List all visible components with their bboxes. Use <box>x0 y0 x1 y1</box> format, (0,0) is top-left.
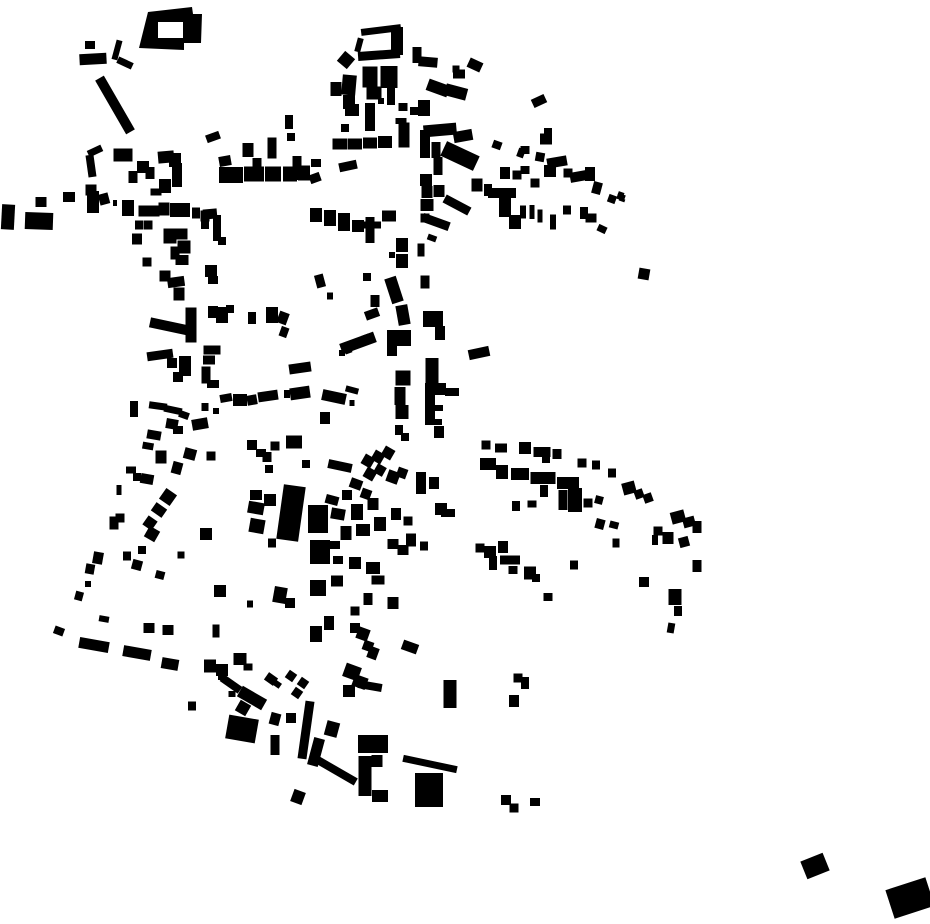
building <box>402 755 457 773</box>
building <box>592 461 600 470</box>
building <box>146 167 155 179</box>
building <box>117 485 122 495</box>
building <box>218 155 232 167</box>
building <box>288 362 311 375</box>
building <box>509 566 518 574</box>
building <box>139 7 202 50</box>
building <box>213 408 219 414</box>
building <box>521 677 529 689</box>
building <box>363 273 371 281</box>
building <box>519 442 531 454</box>
building <box>132 234 142 245</box>
building <box>544 165 556 177</box>
building <box>563 206 571 215</box>
building <box>178 552 185 559</box>
building <box>343 685 355 697</box>
building <box>613 539 620 548</box>
building <box>276 311 290 326</box>
building <box>368 498 379 510</box>
building <box>357 680 382 692</box>
building <box>324 616 334 630</box>
building <box>350 400 355 406</box>
building <box>163 625 174 635</box>
building <box>208 276 218 284</box>
building <box>207 452 216 461</box>
building <box>434 185 445 197</box>
building <box>310 626 322 642</box>
building <box>366 217 375 243</box>
building <box>468 346 491 360</box>
building <box>293 156 302 180</box>
building <box>291 687 304 700</box>
building <box>131 559 143 571</box>
building <box>214 585 226 597</box>
building <box>669 589 682 605</box>
building <box>491 140 502 151</box>
building <box>480 458 496 470</box>
building <box>444 680 457 708</box>
building <box>396 238 408 252</box>
building <box>381 66 398 88</box>
building <box>233 394 247 406</box>
building <box>243 143 254 157</box>
building <box>205 265 217 277</box>
building <box>404 517 413 526</box>
building <box>247 601 253 608</box>
building <box>186 308 197 343</box>
building <box>285 115 293 129</box>
building <box>95 76 135 135</box>
building <box>248 312 256 324</box>
building <box>652 535 658 545</box>
building <box>122 200 134 216</box>
building <box>286 713 296 723</box>
building <box>247 501 265 516</box>
building <box>418 244 425 257</box>
building <box>156 451 167 464</box>
building <box>161 657 180 671</box>
building <box>25 212 54 230</box>
building <box>434 426 444 438</box>
building <box>432 142 441 158</box>
building <box>349 557 361 569</box>
building <box>510 804 519 813</box>
building <box>500 556 520 565</box>
building <box>654 527 663 536</box>
building <box>285 598 295 608</box>
building <box>143 258 152 267</box>
building <box>279 326 290 338</box>
building <box>177 229 188 240</box>
building <box>391 508 401 520</box>
building <box>213 625 220 638</box>
building-footprint-map <box>0 0 930 924</box>
building <box>638 268 651 281</box>
building <box>512 501 520 511</box>
building <box>513 171 522 180</box>
building <box>365 103 375 131</box>
building <box>445 388 459 396</box>
building <box>53 626 65 637</box>
building <box>310 208 322 222</box>
building <box>482 441 491 450</box>
building <box>401 433 409 441</box>
building <box>287 133 295 141</box>
building <box>188 702 196 711</box>
building <box>342 490 352 500</box>
building <box>530 798 540 806</box>
building <box>363 222 381 229</box>
building <box>416 472 426 494</box>
building <box>87 191 99 213</box>
building <box>421 276 430 289</box>
building <box>331 576 343 587</box>
building <box>489 556 497 570</box>
building <box>500 167 510 179</box>
building <box>218 237 226 245</box>
building <box>351 607 360 616</box>
building <box>420 130 430 158</box>
building <box>435 326 445 340</box>
building <box>86 155 97 178</box>
building <box>387 330 411 346</box>
building <box>200 528 212 540</box>
building <box>542 455 550 463</box>
building <box>608 469 616 478</box>
building <box>557 477 579 489</box>
building <box>440 141 479 171</box>
building <box>387 87 395 105</box>
building <box>496 465 508 479</box>
building <box>367 87 382 100</box>
building <box>330 541 340 549</box>
building <box>444 83 468 100</box>
building <box>396 405 409 419</box>
building <box>130 401 138 417</box>
building <box>122 645 151 661</box>
building <box>594 518 605 530</box>
building <box>207 380 219 388</box>
building <box>476 544 485 553</box>
building <box>297 677 310 690</box>
building <box>388 597 399 609</box>
building <box>126 467 136 474</box>
building <box>372 576 385 585</box>
building <box>167 358 177 368</box>
building <box>422 186 433 198</box>
building <box>420 174 432 186</box>
building <box>351 504 363 520</box>
building <box>333 556 343 564</box>
building <box>129 171 138 183</box>
building <box>276 484 305 542</box>
building <box>333 139 348 150</box>
building <box>358 735 388 753</box>
building <box>219 393 232 403</box>
building <box>364 593 373 605</box>
building <box>423 311 443 327</box>
building <box>425 383 435 425</box>
building <box>247 440 257 450</box>
building <box>885 877 930 919</box>
building <box>263 452 272 462</box>
building <box>78 637 109 653</box>
building <box>98 192 111 205</box>
building <box>114 149 133 162</box>
building <box>693 560 702 572</box>
building <box>349 477 364 491</box>
building <box>520 206 526 219</box>
building <box>268 539 276 548</box>
building <box>378 98 384 104</box>
building <box>74 591 84 602</box>
building <box>396 371 411 386</box>
building <box>387 346 397 356</box>
building <box>531 179 540 188</box>
building <box>138 546 146 554</box>
building <box>453 66 460 73</box>
building <box>327 293 333 300</box>
building <box>354 37 363 52</box>
building <box>155 570 166 580</box>
building <box>310 540 330 564</box>
building <box>312 755 358 786</box>
building <box>596 224 607 234</box>
building <box>528 501 537 508</box>
building <box>314 274 326 289</box>
building <box>570 561 578 570</box>
building <box>495 444 507 453</box>
building <box>364 307 380 320</box>
building <box>226 305 234 313</box>
building <box>663 532 674 544</box>
building <box>191 417 209 431</box>
building <box>192 208 200 219</box>
building <box>538 210 543 223</box>
building <box>85 41 95 49</box>
building <box>472 179 483 192</box>
building <box>399 123 410 148</box>
building <box>151 189 162 196</box>
building <box>289 386 310 401</box>
building <box>584 499 593 508</box>
building <box>585 167 595 181</box>
building <box>286 436 302 449</box>
building <box>421 199 434 211</box>
building <box>540 134 552 145</box>
building <box>202 403 209 411</box>
building <box>204 346 221 355</box>
building <box>426 358 439 384</box>
building <box>395 387 406 405</box>
building <box>532 574 540 582</box>
building <box>441 509 455 517</box>
building <box>389 252 395 258</box>
building <box>418 100 430 116</box>
building <box>499 197 511 217</box>
building <box>331 82 342 96</box>
building <box>341 124 349 132</box>
building <box>372 790 388 802</box>
building <box>116 514 125 523</box>
building <box>325 494 340 506</box>
building <box>142 442 154 451</box>
building <box>345 385 359 394</box>
building <box>219 167 243 183</box>
building <box>85 581 91 587</box>
building <box>467 58 484 73</box>
building <box>434 419 442 425</box>
building <box>553 449 562 459</box>
building <box>341 526 352 540</box>
building <box>99 615 110 623</box>
building <box>488 188 516 198</box>
building <box>366 562 380 574</box>
building <box>530 205 535 219</box>
building <box>359 756 372 796</box>
building <box>509 695 519 707</box>
building <box>401 640 419 655</box>
building <box>521 166 530 174</box>
building <box>609 520 620 529</box>
building <box>339 350 345 356</box>
building <box>92 551 104 565</box>
building <box>374 517 386 531</box>
building <box>140 473 155 485</box>
building <box>308 505 328 533</box>
building <box>427 234 438 243</box>
building <box>371 295 380 307</box>
building <box>544 593 553 601</box>
building <box>204 660 216 673</box>
building <box>586 214 597 223</box>
building <box>594 495 604 505</box>
building <box>310 580 326 596</box>
building <box>338 160 357 173</box>
building <box>395 304 410 326</box>
building <box>170 203 190 217</box>
building <box>550 215 556 230</box>
building <box>135 221 143 230</box>
building <box>607 194 617 204</box>
building <box>435 405 443 411</box>
building <box>568 488 582 512</box>
building <box>253 158 262 176</box>
building <box>320 412 330 424</box>
building <box>264 494 276 506</box>
building <box>420 542 428 551</box>
building <box>498 541 508 553</box>
building <box>535 152 545 162</box>
building <box>337 51 355 69</box>
building <box>399 103 408 111</box>
building <box>151 502 167 518</box>
building <box>234 653 247 665</box>
building <box>338 213 350 231</box>
map-canvas <box>0 0 930 924</box>
building <box>308 172 321 184</box>
building <box>144 526 160 542</box>
building <box>284 390 290 398</box>
building <box>356 524 370 536</box>
building <box>311 159 321 167</box>
building <box>246 394 258 406</box>
building <box>396 254 408 268</box>
building <box>268 138 277 159</box>
building <box>271 442 280 451</box>
building <box>173 426 183 434</box>
building <box>421 213 450 231</box>
building <box>327 459 352 473</box>
building <box>172 163 182 187</box>
building <box>406 534 416 547</box>
building <box>382 211 396 222</box>
building <box>540 485 548 497</box>
building <box>302 460 310 468</box>
building <box>290 789 306 805</box>
building <box>205 131 221 143</box>
building <box>250 490 262 500</box>
building <box>265 167 281 182</box>
building <box>674 606 682 616</box>
building <box>225 715 259 744</box>
building <box>257 390 278 403</box>
building <box>146 429 161 440</box>
building <box>321 389 347 405</box>
building <box>159 203 170 216</box>
building <box>63 192 75 202</box>
building <box>324 720 340 738</box>
building <box>244 664 253 671</box>
building <box>269 712 282 726</box>
building <box>544 128 552 134</box>
building <box>678 536 690 548</box>
building <box>36 197 47 207</box>
building <box>85 563 96 574</box>
building <box>171 461 184 475</box>
building <box>348 139 362 150</box>
building <box>531 94 547 108</box>
building <box>144 221 153 230</box>
building <box>203 356 215 365</box>
building <box>123 552 131 561</box>
building <box>139 206 160 217</box>
building <box>415 773 443 807</box>
building <box>639 577 649 587</box>
building <box>429 477 439 489</box>
building <box>113 200 117 206</box>
building <box>345 104 359 116</box>
building <box>324 210 336 226</box>
building <box>591 181 603 195</box>
building <box>667 622 676 633</box>
building <box>531 472 556 484</box>
building <box>164 229 177 244</box>
building <box>159 488 177 506</box>
building <box>116 56 133 69</box>
building <box>79 53 107 65</box>
building <box>229 691 236 697</box>
building <box>176 255 189 265</box>
building <box>384 276 403 304</box>
building <box>183 447 197 461</box>
building <box>800 853 829 880</box>
building <box>372 755 383 767</box>
building <box>266 307 278 323</box>
building <box>410 107 418 115</box>
building <box>363 138 377 149</box>
building <box>388 539 399 549</box>
